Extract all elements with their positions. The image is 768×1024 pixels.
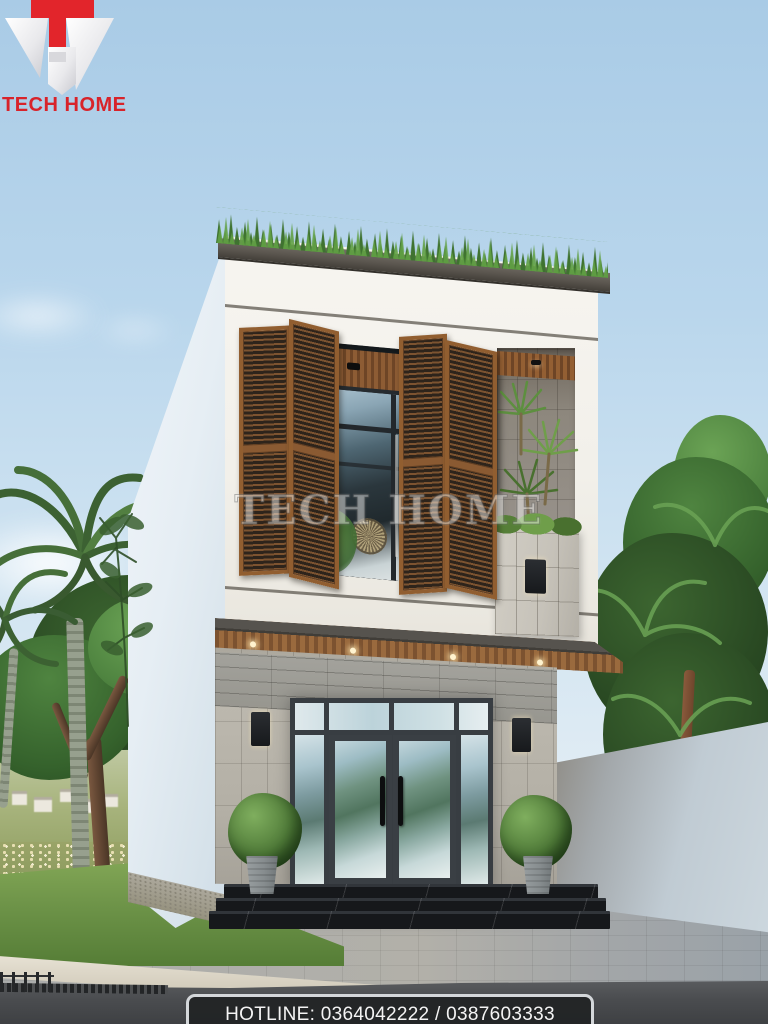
- door-handle-left[interactable]: [380, 776, 385, 826]
- awning-downlight: [537, 659, 543, 665]
- stone-planter-box: [495, 526, 579, 637]
- door-sidelight-left: [295, 735, 324, 884]
- wall-sconce-left: [251, 712, 270, 746]
- door-sidelight-right: [461, 735, 488, 884]
- roadside-fence: [0, 972, 54, 992]
- architectural-render-scene: TECH HOME TECH HOME HOTLINE: 0364042222 …: [0, 0, 768, 1024]
- awning-downlight: [250, 641, 256, 647]
- door-handle-right[interactable]: [398, 776, 403, 826]
- second-storey-window: [247, 335, 490, 590]
- tech-home-logo-icon: [2, 0, 126, 96]
- village-house: [104, 797, 118, 807]
- hotline-bar: HOTLINE: 0364042222 / 0387603333: [186, 994, 594, 1024]
- awning-downlight: [450, 654, 456, 660]
- logo-text: TECH HOME: [2, 94, 142, 117]
- village-house: [34, 800, 52, 812]
- entry-door-assembly: [290, 698, 493, 889]
- bifold-shutter-panel: [445, 340, 497, 600]
- wall-sconce-right: [512, 718, 531, 752]
- bifold-shutter-panel: [399, 334, 447, 595]
- watermark: TECH HOME: [234, 482, 544, 540]
- bifold-shutter-panel: [289, 319, 339, 590]
- village-house: [12, 794, 27, 805]
- planter-wall-lamp: [525, 559, 546, 594]
- cloud: [0, 292, 105, 340]
- marble-step: [209, 911, 610, 929]
- ceiling-light: [347, 362, 360, 370]
- tech-home-logo: TECH HOME: [2, 0, 142, 120]
- cloud: [92, 316, 177, 344]
- hotline-text: HOTLINE: 0364042222 / 0387603333: [225, 1004, 555, 1024]
- awning-downlight: [350, 647, 356, 653]
- foreground-foliage: [98, 478, 190, 728]
